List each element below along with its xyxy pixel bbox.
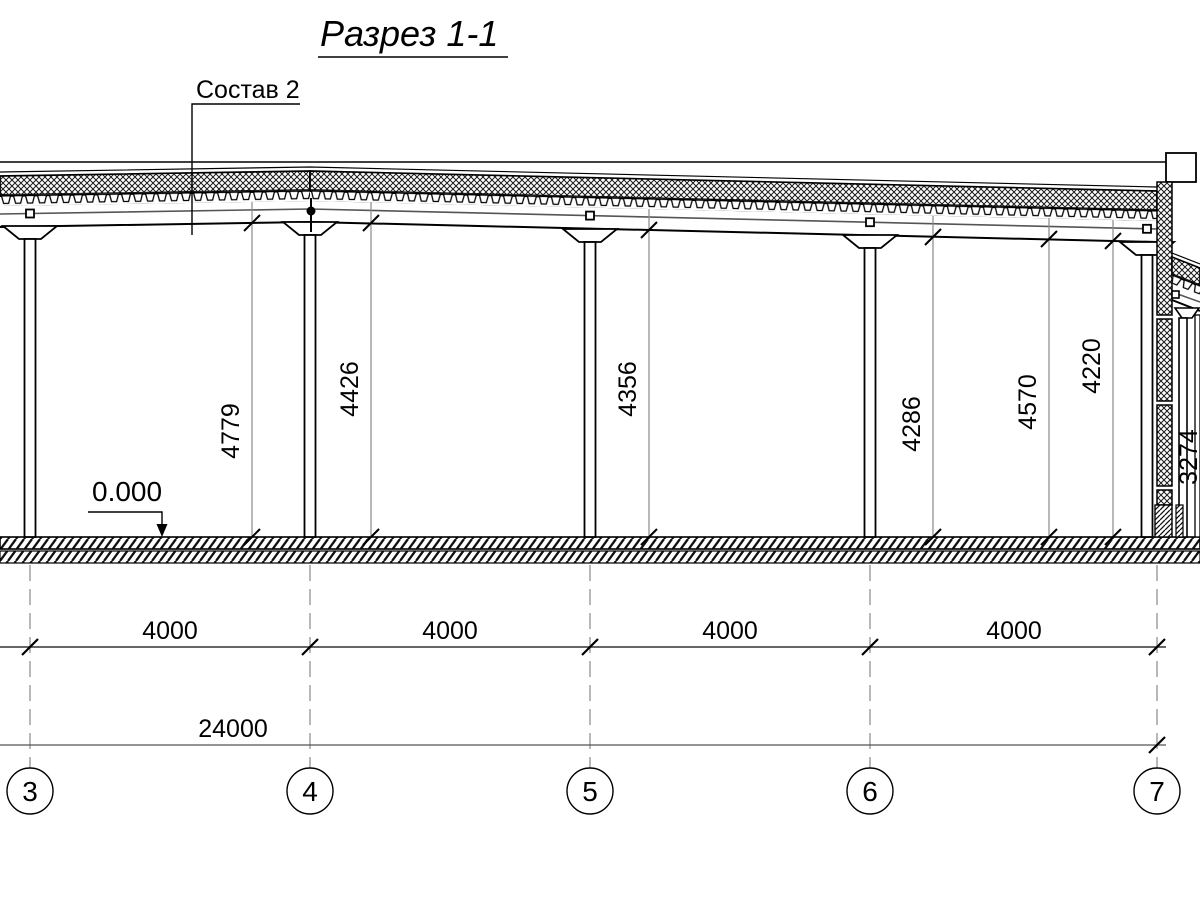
axis-bubble-7: 7 — [1134, 768, 1180, 814]
height-dim-label: 4220 — [1078, 338, 1106, 394]
drawing-title-text: Разрез 1-1 — [320, 13, 498, 54]
grid-axis-bubbles: 3 4 5 6 7 — [7, 768, 1180, 814]
span-dimension-row: 4000 4000 4000 4000 — [0, 617, 1166, 655]
axis-label: 3 — [22, 776, 38, 807]
height-dim-label: 3274 — [1175, 429, 1200, 485]
height-dim-4356: 4356 — [614, 209, 657, 545]
column-axis-5 — [563, 229, 617, 537]
total-dim-label: 24000 — [198, 715, 268, 743]
section-drawing: 4779 4426 4356 4286 4570 — [0, 0, 1200, 900]
span-dim-label: 4000 — [986, 617, 1042, 645]
level-mark: 0.000 — [88, 476, 168, 537]
parapet-cap — [1166, 153, 1196, 182]
column-axis-4 — [283, 222, 337, 537]
axis-bubble-4: 4 — [287, 768, 333, 814]
adjacent-column — [1179, 318, 1187, 537]
height-dim-4779: 4779 — [217, 202, 260, 545]
height-dimensions: 4779 4426 4356 4286 4570 — [217, 202, 1200, 545]
height-dim-4220: 4220 — [1078, 220, 1121, 545]
height-dim-label: 4779 — [217, 403, 245, 459]
column-axis-6 — [843, 235, 897, 537]
height-dim-label: 4286 — [898, 396, 926, 452]
axis-bubble-5: 5 — [567, 768, 613, 814]
wall-foundation-beam — [1155, 505, 1172, 537]
height-dim-4286: 4286 — [898, 216, 941, 545]
callout-leader-line — [192, 104, 300, 235]
height-dim-4426: 4426 — [336, 202, 379, 545]
axis-bubble-3: 3 — [7, 768, 53, 814]
total-dimension-row: 24000 — [0, 715, 1166, 753]
span-dim-label: 4000 — [702, 617, 758, 645]
level-mark-value: 0.000 — [92, 476, 162, 507]
column-axis-3 — [3, 226, 57, 537]
height-dim-4570: 4570 — [1014, 218, 1057, 545]
axis-label: 4 — [302, 776, 318, 807]
span-dim-label: 4000 — [142, 617, 198, 645]
drawing-title: Разрез 1-1 — [318, 13, 508, 57]
span-dim-label: 4000 — [422, 617, 478, 645]
columns — [3, 222, 1174, 537]
axis-label: 7 — [1149, 776, 1165, 807]
height-dim-label: 4426 — [336, 361, 364, 417]
adjacent-foundation — [1176, 505, 1183, 537]
axis-bubble-6: 6 — [847, 768, 893, 814]
level-mark-arrow — [157, 524, 168, 537]
height-dim-3274: 3274 — [1175, 429, 1200, 485]
floor-slab — [0, 537, 1200, 563]
axis-label: 5 — [582, 776, 598, 807]
axis-label: 6 — [862, 776, 878, 807]
callout-label: Состав 2 — [196, 76, 300, 104]
height-dim-label: 4356 — [614, 361, 642, 417]
height-dim-label: 4570 — [1014, 374, 1042, 430]
drawing-sheet: 4779 4426 4356 4286 4570 — [0, 0, 1200, 900]
adjacent-bay — [1172, 253, 1200, 537]
